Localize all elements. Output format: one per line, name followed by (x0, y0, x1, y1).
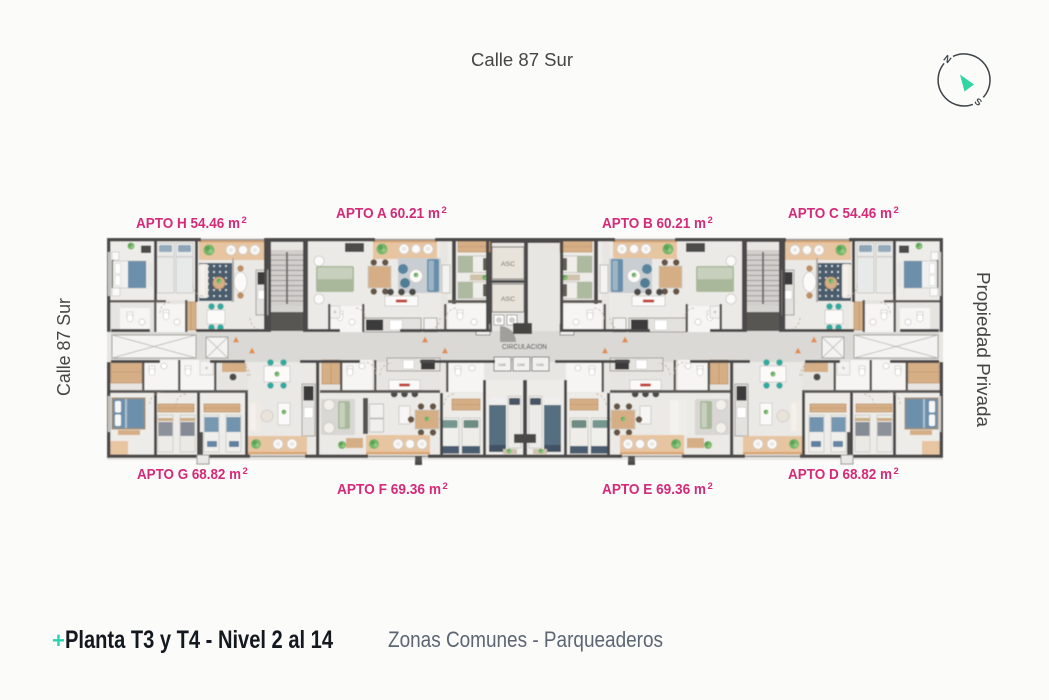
svg-text:Calle 87 Sur: Calle 87 Sur (471, 50, 573, 70)
svg-text:2: 2 (708, 215, 713, 226)
svg-text:2: 2 (708, 481, 713, 492)
svg-text:APTO G 68.82 m: APTO G 68.82 m (137, 466, 241, 483)
svg-text:APTO A 60.21 m: APTO A 60.21 m (336, 205, 440, 222)
svg-text:2: 2 (442, 205, 447, 216)
svg-text:APTO E 69.36 m: APTO E 69.36 m (602, 481, 706, 498)
svg-text:2: 2 (443, 481, 448, 492)
svg-text:2: 2 (894, 466, 899, 477)
svg-text:Propiedad Privada: Propiedad Privada (973, 272, 993, 428)
svg-text:Calle 87 Sur: Calle 87 Sur (54, 298, 74, 396)
svg-text:APTO B 60.21 m: APTO B 60.21 m (602, 215, 706, 232)
svg-text:+: + (52, 628, 65, 653)
svg-text:APTO C 54.46 m: APTO C 54.46 m (788, 205, 892, 222)
svg-text:2: 2 (894, 205, 899, 216)
svg-text:2: 2 (242, 215, 247, 226)
svg-text:Planta T3 y T4 - Nivel 2 al 14: Planta T3 y T4 - Nivel 2 al 14 (65, 626, 333, 654)
svg-text:APTO H 54.46 m: APTO H 54.46 m (136, 215, 240, 232)
svg-text:Zonas Comunes - Parqueaderos: Zonas Comunes - Parqueaderos (388, 627, 663, 652)
svg-text:APTO F 69.36 m: APTO F 69.36 m (337, 481, 441, 498)
svg-text:APTO D 68.82 m: APTO D 68.82 m (788, 466, 892, 483)
svg-text:2: 2 (243, 466, 248, 477)
